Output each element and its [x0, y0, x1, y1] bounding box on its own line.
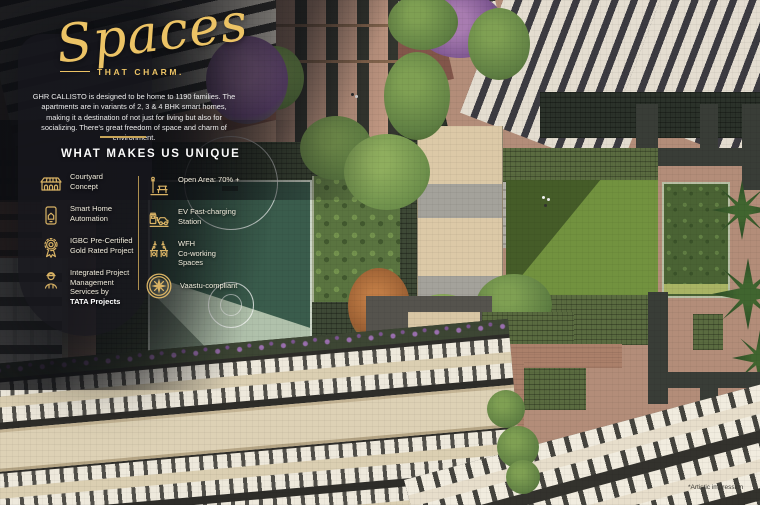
feature-label: WFH Co-working Spaces — [178, 239, 216, 268]
feature-label-bold: TATA Projects — [70, 297, 120, 306]
open-area-icon — [146, 175, 172, 199]
vaastu-compass-icon — [144, 272, 174, 300]
courtyard-icon — [38, 172, 64, 196]
feature-ev-charging: EV Fast-charging Station — [146, 207, 276, 231]
feature-label: IGBC Pre-Certified Gold Rated Project — [70, 236, 133, 255]
feature-courtyard-concept: Courtyard Concept — [38, 172, 142, 196]
brochure-page: Spaces THAT CHARM. GHR CALLISTO is desig… — [0, 0, 760, 505]
feature-open-area: Open Area: 70% + — [146, 175, 276, 199]
tagline-flourish-line — [60, 71, 90, 72]
feature-label: Smart Home Automation — [70, 204, 112, 223]
content-overlay: Spaces THAT CHARM. GHR CALLISTO is desig… — [0, 0, 760, 505]
feature-label: EV Fast-charging Station — [178, 207, 236, 226]
column-divider — [138, 176, 139, 290]
feature-wfh: WFH Co-working Spaces — [146, 239, 276, 268]
script-title: Spaces — [53, 0, 251, 76]
tagline: THAT CHARM. — [97, 67, 184, 77]
unique-heading: WHAT MAKES US UNIQUE — [61, 148, 240, 160]
feature-igbc: IGBC Pre-Certified Gold Rated Project — [38, 236, 150, 260]
smart-home-icon — [38, 204, 64, 228]
footnote-artistic-impression: *Artistic impression — [688, 484, 743, 491]
feature-label: Courtyard Concept — [70, 172, 103, 191]
feature-tata-projects: Integrated Project Management Services b… — [38, 268, 150, 306]
engineer-icon — [38, 268, 64, 292]
gold-divider — [100, 136, 146, 138]
feature-label: Vaastu-compliant — [180, 281, 237, 291]
feature-smart-home: Smart Home Automation — [38, 204, 146, 228]
ev-charging-icon — [146, 207, 172, 231]
feature-label: Open Area: 70% + — [178, 175, 240, 185]
wfh-icon — [146, 239, 172, 263]
feature-label: Integrated Project Management Services b… — [70, 268, 129, 306]
igbc-medal-icon — [38, 236, 64, 260]
feature-vaastu: Vaastu-compliant — [144, 272, 276, 300]
